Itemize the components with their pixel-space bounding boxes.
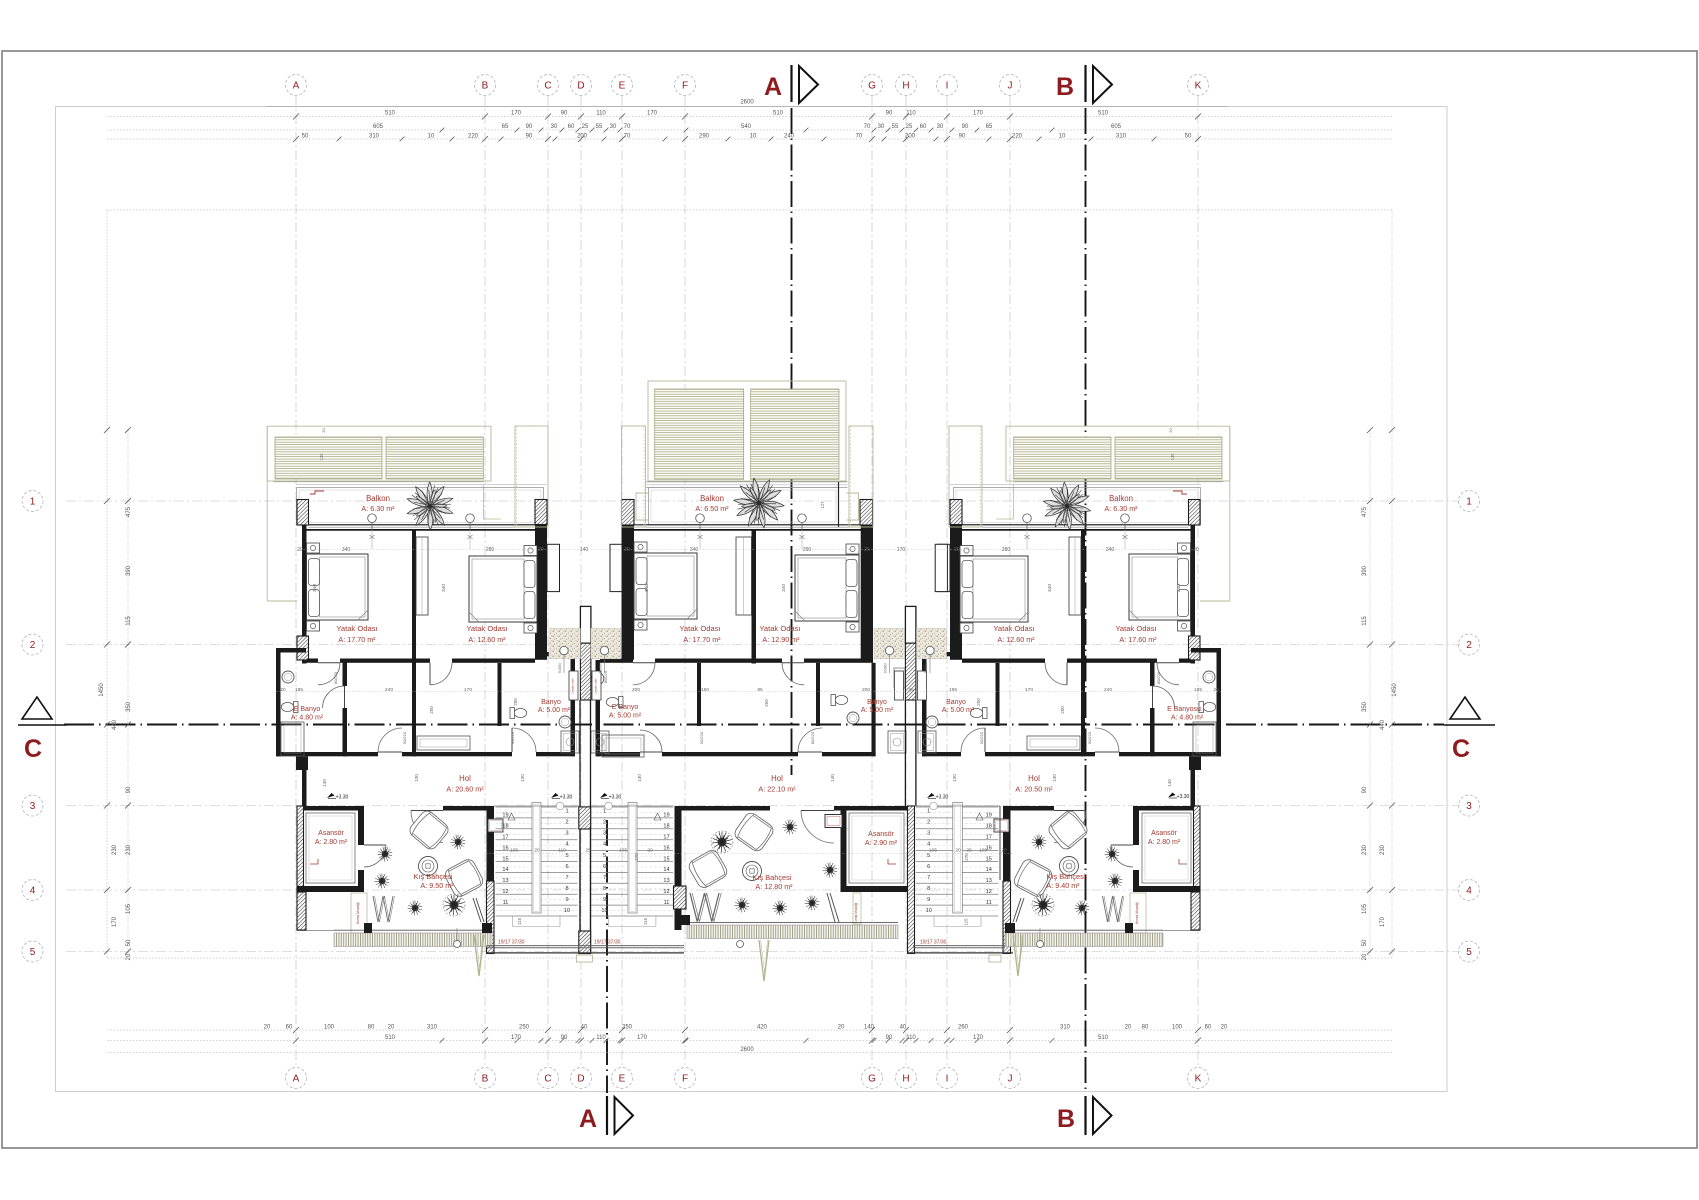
svg-text:170: 170 — [112, 916, 118, 927]
svg-text:6: 6 — [565, 864, 568, 870]
svg-text:60: 60 — [568, 124, 575, 130]
svg-text:+3.30: +3.30 — [936, 795, 949, 801]
svg-text:Yatak Odası: Yatak Odası — [679, 624, 720, 633]
svg-text:19: 19 — [502, 813, 508, 819]
svg-text:20: 20 — [955, 848, 961, 854]
svg-text:Banyo: Banyo — [867, 699, 887, 706]
svg-text:19: 19 — [663, 813, 669, 819]
svg-text:A: 5.00 m²: A: 5.00 m² — [538, 707, 571, 714]
svg-text:250: 250 — [429, 706, 434, 714]
svg-text:110: 110 — [596, 1035, 606, 1041]
svg-text:B: B — [482, 1074, 489, 1085]
svg-text:2: 2 — [603, 820, 606, 826]
svg-text:605: 605 — [1111, 124, 1122, 130]
svg-text:310: 310 — [369, 134, 380, 140]
svg-text:E: E — [619, 1074, 626, 1085]
svg-text:340: 340 — [690, 547, 699, 553]
svg-text:J: J — [1008, 81, 1013, 92]
svg-text:Balkon: Balkon — [366, 494, 390, 503]
svg-text:A: 5.00 m²: A: 5.00 m² — [609, 713, 642, 720]
svg-text:1: 1 — [565, 809, 568, 815]
svg-text:250: 250 — [519, 1025, 530, 1031]
svg-text:440: 440 — [112, 719, 118, 730]
svg-text:140: 140 — [580, 547, 589, 553]
svg-text:230: 230 — [1380, 844, 1386, 855]
svg-text:540: 540 — [741, 124, 752, 130]
svg-text:605: 605 — [373, 124, 384, 130]
svg-text:130: 130 — [1052, 774, 1057, 782]
svg-text:25: 25 — [966, 848, 972, 854]
svg-text:200: 200 — [577, 134, 588, 140]
svg-text:A: 6.50 m²: A: 6.50 m² — [695, 504, 729, 513]
svg-text:2: 2 — [565, 820, 568, 826]
svg-text:310: 310 — [1116, 134, 1127, 140]
svg-text:440: 440 — [1380, 719, 1386, 730]
svg-text:140: 140 — [864, 1025, 875, 1031]
svg-text:2600: 2600 — [740, 1047, 754, 1053]
svg-text:Hol: Hol — [771, 774, 783, 783]
svg-text:80: 80 — [1142, 1025, 1149, 1031]
svg-text:230: 230 — [112, 844, 118, 855]
svg-text:20: 20 — [1168, 428, 1173, 433]
svg-text:A: 4.80 m²: A: 4.80 m² — [1171, 715, 1204, 722]
svg-text:I: I — [946, 1074, 949, 1085]
svg-text:A: 5.00 m²: A: 5.00 m² — [942, 707, 975, 714]
svg-text:10: 10 — [564, 908, 570, 914]
svg-text:20: 20 — [838, 1025, 845, 1031]
svg-text:510: 510 — [385, 1035, 396, 1041]
svg-text:90/220: 90/220 — [699, 731, 704, 744]
svg-text:150: 150 — [701, 687, 709, 693]
svg-text:310: 310 — [427, 1025, 438, 1031]
svg-text:11: 11 — [986, 900, 992, 906]
svg-text:170: 170 — [511, 1035, 522, 1041]
svg-text:30: 30 — [610, 124, 617, 130]
svg-text:9: 9 — [603, 897, 606, 903]
svg-text:290: 290 — [803, 547, 812, 553]
svg-text:170: 170 — [647, 111, 658, 117]
svg-text:105: 105 — [619, 848, 627, 854]
svg-text:A: 17.70 m²: A: 17.70 m² — [338, 635, 376, 644]
svg-text:H: H — [902, 81, 909, 92]
svg-text:170: 170 — [637, 1035, 648, 1041]
svg-text:510: 510 — [385, 111, 396, 117]
svg-text:12: 12 — [502, 889, 508, 895]
svg-text:9: 9 — [565, 897, 568, 903]
svg-text:13: 13 — [502, 878, 508, 884]
svg-text:230: 230 — [126, 844, 132, 855]
svg-text:4: 4 — [927, 842, 930, 848]
svg-text:6: 6 — [927, 864, 930, 870]
svg-text:1450: 1450 — [1392, 683, 1398, 697]
svg-text:90: 90 — [561, 1035, 568, 1041]
svg-text:90: 90 — [561, 111, 568, 117]
svg-text:8: 8 — [927, 886, 930, 892]
svg-text:105: 105 — [1362, 903, 1368, 914]
svg-text:4: 4 — [565, 842, 568, 848]
svg-text:340: 340 — [1176, 584, 1182, 592]
svg-text:D: D — [577, 81, 584, 92]
svg-text:130: 130 — [520, 774, 525, 782]
svg-text:10: 10 — [1059, 134, 1066, 140]
svg-text:130: 130 — [1170, 453, 1175, 461]
svg-text:14: 14 — [502, 867, 508, 873]
svg-text:50: 50 — [302, 134, 309, 140]
svg-text:15: 15 — [663, 856, 669, 862]
svg-text:240: 240 — [784, 134, 795, 140]
svg-text:8: 8 — [565, 886, 568, 892]
svg-text:250: 250 — [622, 1025, 633, 1031]
svg-text:H: H — [902, 1074, 909, 1085]
svg-text:90/220: 90/220 — [402, 731, 407, 744]
svg-text:A: 17.60 m²: A: 17.60 m² — [1119, 635, 1157, 644]
svg-text:20: 20 — [534, 848, 540, 854]
svg-text:105: 105 — [126, 903, 132, 914]
svg-text:B: B — [1056, 73, 1074, 101]
svg-text:115: 115 — [126, 616, 132, 626]
svg-text:Kırma Mozaiği: Kırma Mozaiği — [854, 903, 858, 924]
svg-text:A: 6.30 m²: A: 6.30 m² — [1104, 504, 1138, 513]
svg-text:Yatak Odası: Yatak Odası — [336, 624, 377, 633]
svg-text:Balkon: Balkon — [1109, 494, 1133, 503]
svg-text:280: 280 — [486, 547, 495, 553]
svg-text:A: 17.70 m²: A: 17.70 m² — [683, 635, 721, 644]
svg-text:E: E — [619, 81, 626, 92]
svg-text:90: 90 — [526, 134, 533, 140]
svg-text:8: 8 — [603, 886, 606, 892]
svg-text:A: 9.40 m²: A: 9.40 m² — [1046, 881, 1080, 890]
svg-text:1: 1 — [1466, 497, 1472, 508]
svg-text:420: 420 — [757, 1025, 768, 1031]
svg-text:A: 22.10 m²: A: 22.10 m² — [758, 785, 796, 794]
svg-text:185: 185 — [1194, 687, 1202, 693]
svg-text:105: 105 — [979, 848, 987, 854]
svg-text:17: 17 — [663, 834, 669, 840]
svg-text:80/220: 80/220 — [1156, 671, 1161, 684]
svg-text:50: 50 — [1185, 134, 1192, 140]
svg-text:E Banyo: E Banyo — [294, 706, 321, 713]
svg-text:25: 25 — [908, 687, 914, 693]
svg-text:25: 25 — [585, 848, 591, 854]
svg-text:70: 70 — [864, 124, 871, 130]
svg-text:90: 90 — [959, 134, 966, 140]
svg-text:30: 30 — [878, 124, 885, 130]
svg-text:130: 130 — [319, 453, 324, 461]
svg-text:18: 18 — [502, 824, 508, 830]
svg-text:80: 80 — [368, 1025, 375, 1031]
svg-text:250: 250 — [976, 698, 981, 706]
svg-text:475: 475 — [1362, 506, 1368, 517]
svg-text:90: 90 — [886, 1035, 893, 1041]
svg-text:1: 1 — [603, 809, 606, 815]
svg-text:Asansör: Asansör — [868, 831, 894, 838]
svg-text:350: 350 — [126, 701, 132, 712]
svg-text:B: B — [1057, 1105, 1075, 1133]
svg-text:290: 290 — [699, 134, 710, 140]
svg-text:80/220: 80/220 — [603, 670, 608, 683]
svg-text:Kış Bahçesi: Kış Bahçesi — [752, 873, 791, 882]
svg-text:+3.30: +3.30 — [609, 795, 622, 801]
svg-text:20: 20 — [647, 848, 653, 854]
svg-text:C: C — [544, 81, 551, 92]
svg-text:55: 55 — [596, 124, 603, 130]
svg-text:80/220: 80/220 — [810, 731, 815, 744]
svg-text:115: 115 — [1362, 616, 1368, 626]
svg-text:14: 14 — [663, 867, 669, 873]
svg-text:90: 90 — [886, 111, 893, 117]
svg-text:A: 12.90 m²: A: 12.90 m² — [762, 635, 800, 644]
svg-text:C: C — [24, 735, 42, 763]
svg-text:260: 260 — [958, 1025, 969, 1031]
svg-text:19/17 37/30: 19/17 37/30 — [594, 940, 621, 946]
svg-text:140: 140 — [322, 779, 327, 787]
svg-text:3: 3 — [30, 801, 36, 812]
svg-text:15: 15 — [986, 856, 992, 862]
svg-text:110: 110 — [906, 111, 916, 117]
svg-text:270: 270 — [964, 853, 969, 861]
svg-text:Kırma Mozaiği: Kırma Mozaiği — [1135, 902, 1139, 924]
svg-text:475: 475 — [126, 506, 132, 517]
svg-text:16: 16 — [663, 845, 669, 851]
svg-text:510: 510 — [1098, 1035, 1109, 1041]
svg-text:A: 20.50 m²: A: 20.50 m² — [1015, 785, 1053, 794]
svg-text:105: 105 — [510, 848, 518, 854]
svg-text:340: 340 — [1106, 547, 1115, 553]
svg-text:90/260: 90/260 — [599, 663, 603, 673]
svg-text:20: 20 — [388, 1025, 395, 1031]
svg-text:90/220: 90/220 — [510, 731, 515, 744]
svg-text:Asansör: Asansör — [318, 830, 344, 837]
svg-text:5: 5 — [1466, 947, 1472, 958]
svg-text:Kış Bahçesi: Kış Bahçesi — [1046, 872, 1085, 881]
svg-text:11: 11 — [664, 900, 670, 906]
svg-text:A: 9.50 m²: A: 9.50 m² — [420, 881, 454, 890]
svg-text:18: 18 — [986, 824, 992, 830]
svg-text:30: 30 — [937, 124, 944, 130]
svg-text:185: 185 — [295, 687, 303, 693]
svg-text:110: 110 — [558, 848, 566, 854]
svg-text:130: 130 — [952, 774, 957, 782]
svg-text:30: 30 — [551, 124, 558, 130]
svg-text:390: 390 — [1362, 565, 1368, 576]
svg-text:25: 25 — [582, 124, 589, 130]
svg-text:5: 5 — [30, 947, 36, 958]
svg-text:A: A — [293, 1074, 300, 1085]
svg-text:20: 20 — [126, 953, 132, 960]
svg-text:20: 20 — [264, 1025, 271, 1031]
svg-text:16: 16 — [502, 845, 508, 851]
svg-text:340: 340 — [312, 584, 318, 592]
svg-text:F: F — [682, 1074, 688, 1085]
svg-text:170: 170 — [973, 111, 984, 117]
svg-text:340: 340 — [781, 584, 787, 592]
svg-text:250: 250 — [513, 698, 518, 706]
svg-text:A: 12.60 m²: A: 12.60 m² — [468, 635, 506, 644]
svg-text:50: 50 — [1362, 939, 1368, 946]
svg-text:2600: 2600 — [740, 100, 754, 106]
svg-text:115: 115 — [964, 918, 969, 926]
svg-text:A: 12.80 m²: A: 12.80 m² — [755, 882, 793, 891]
svg-text:9: 9 — [927, 897, 930, 903]
svg-text:1: 1 — [30, 497, 36, 508]
svg-text:6: 6 — [603, 864, 606, 870]
svg-text:390: 390 — [126, 565, 132, 576]
svg-text:1: 1 — [927, 809, 930, 815]
svg-text:250: 250 — [764, 699, 769, 707]
svg-text:F: F — [682, 81, 688, 92]
svg-text:20: 20 — [1193, 547, 1199, 553]
svg-text:20: 20 — [321, 428, 326, 433]
svg-text:D: D — [577, 1074, 584, 1085]
svg-text:3: 3 — [927, 831, 930, 837]
svg-text:90: 90 — [962, 124, 969, 130]
svg-text:G: G — [868, 1074, 876, 1085]
svg-text:240: 240 — [385, 687, 393, 693]
svg-text:170: 170 — [897, 547, 906, 553]
svg-text:A: 2.80 m²: A: 2.80 m² — [315, 839, 348, 846]
svg-text:240: 240 — [1104, 687, 1112, 693]
svg-text:90: 90 — [1362, 786, 1368, 793]
svg-text:90: 90 — [526, 124, 533, 130]
svg-text:340: 340 — [644, 584, 650, 592]
svg-text:17: 17 — [502, 834, 508, 840]
svg-text:2: 2 — [927, 820, 930, 826]
svg-text:65: 65 — [502, 124, 509, 130]
svg-text:50: 50 — [126, 939, 132, 946]
svg-text:200: 200 — [862, 687, 870, 693]
svg-text:130: 130 — [637, 774, 642, 782]
svg-text:105: 105 — [929, 848, 937, 854]
svg-text:510: 510 — [1098, 111, 1109, 117]
svg-text:60: 60 — [1205, 1025, 1212, 1031]
svg-text:15: 15 — [502, 856, 508, 862]
svg-text:20: 20 — [864, 547, 870, 553]
svg-text:A: A — [579, 1105, 597, 1133]
svg-text:280: 280 — [1002, 547, 1011, 553]
svg-text:25: 25 — [906, 124, 913, 130]
svg-text:Banyo: Banyo — [541, 699, 561, 706]
svg-text:65: 65 — [986, 124, 993, 130]
svg-text:+3.30: +3.30 — [560, 795, 573, 801]
svg-text:Yatak Odası: Yatak Odası — [759, 624, 800, 633]
svg-text:195: 195 — [949, 687, 957, 693]
svg-text:10: 10 — [428, 134, 435, 140]
svg-text:230: 230 — [1362, 844, 1368, 855]
svg-text:Banyo: Banyo — [946, 699, 966, 706]
svg-text:Hol: Hol — [459, 774, 471, 783]
svg-text:17: 17 — [986, 834, 992, 840]
svg-text:85: 85 — [757, 687, 763, 693]
svg-text:140: 140 — [830, 774, 835, 782]
svg-text:90: 90 — [126, 786, 132, 793]
svg-text:A: 4.80 m²: A: 4.80 m² — [291, 715, 324, 722]
svg-text:13: 13 — [986, 878, 992, 884]
svg-text:170: 170 — [1380, 916, 1386, 927]
svg-text:60: 60 — [920, 124, 927, 130]
svg-text:20: 20 — [280, 687, 286, 693]
svg-text:2: 2 — [30, 640, 36, 651]
svg-text:G: G — [868, 81, 876, 92]
svg-text:340: 340 — [342, 547, 351, 553]
svg-text:60: 60 — [286, 1025, 293, 1031]
svg-text:70: 70 — [856, 134, 863, 140]
svg-text:7: 7 — [927, 875, 930, 881]
svg-text:19/17 37/30: 19/17 37/30 — [498, 940, 525, 946]
svg-text:Asansör: Asansör — [1151, 830, 1177, 837]
svg-text:4: 4 — [1466, 886, 1472, 897]
svg-text:3: 3 — [1466, 801, 1472, 812]
svg-text:130: 130 — [414, 774, 419, 782]
svg-text:3: 3 — [565, 831, 568, 837]
svg-text:I: I — [946, 81, 949, 92]
svg-text:20: 20 — [624, 547, 630, 553]
svg-text:115: 115 — [643, 917, 648, 925]
svg-text:220: 220 — [468, 134, 479, 140]
svg-text:170: 170 — [464, 687, 472, 693]
svg-text:14: 14 — [986, 867, 992, 873]
svg-text:Kırma Mozaiği: Kırma Mozaiği — [356, 902, 360, 924]
svg-text:127: 127 — [820, 501, 825, 509]
svg-text:90/220: 90/220 — [979, 731, 984, 744]
svg-text:J: J — [1008, 1074, 1013, 1085]
svg-text:80/220: 80/220 — [333, 671, 338, 684]
svg-text:70: 70 — [624, 124, 631, 130]
svg-text:140: 140 — [1167, 779, 1172, 787]
svg-text:20: 20 — [1125, 1025, 1132, 1031]
svg-text:Balkon: Balkon — [700, 494, 724, 503]
svg-text:10: 10 — [750, 134, 757, 140]
svg-text:E Banyosu: E Banyosu — [1167, 706, 1201, 713]
svg-text:A: 20.60 m²: A: 20.60 m² — [446, 785, 484, 794]
svg-text:B: B — [482, 81, 489, 92]
svg-text:A: A — [293, 81, 300, 92]
svg-text:270: 270 — [634, 853, 639, 861]
svg-text:20: 20 — [1001, 848, 1007, 854]
svg-text:A: 2.90 m²: A: 2.90 m² — [865, 840, 898, 847]
svg-text:18: 18 — [663, 824, 669, 830]
svg-text:100: 100 — [324, 1025, 335, 1031]
svg-text:Kış Bahçesi: Kış Bahçesi — [413, 872, 452, 881]
svg-text:1450: 1450 — [99, 683, 105, 697]
svg-text:20: 20 — [1221, 1025, 1228, 1031]
svg-text:Yatak Odası: Yatak Odası — [993, 624, 1034, 633]
svg-text:20: 20 — [1213, 687, 1219, 693]
svg-text:2: 2 — [1466, 640, 1472, 651]
svg-text:10: 10 — [926, 908, 932, 914]
svg-text:340: 340 — [441, 584, 447, 592]
svg-text:170: 170 — [973, 1035, 984, 1041]
svg-text:A: 12.60 m²: A: 12.60 m² — [997, 635, 1035, 644]
svg-text:7: 7 — [603, 875, 606, 881]
svg-text:19: 19 — [986, 813, 992, 819]
svg-text:E Banyo: E Banyo — [612, 704, 639, 711]
svg-text:+3.30: +3.30 — [1177, 794, 1190, 800]
svg-text:110: 110 — [906, 1035, 916, 1041]
svg-text:170: 170 — [511, 111, 522, 117]
svg-text:A: 5.00 m²: A: 5.00 m² — [861, 707, 894, 714]
svg-text:115: 115 — [517, 917, 522, 925]
svg-text:13: 13 — [663, 878, 669, 884]
svg-text:4: 4 — [603, 842, 606, 848]
svg-text:3: 3 — [603, 831, 606, 837]
svg-text:90/260: 90/260 — [884, 663, 888, 673]
svg-text:220: 220 — [1012, 134, 1023, 140]
svg-text:Hol: Hol — [1028, 774, 1040, 783]
svg-text:55: 55 — [892, 124, 899, 130]
svg-text:200: 200 — [632, 687, 640, 693]
svg-text:12: 12 — [986, 889, 992, 895]
svg-text:K: K — [1195, 81, 1202, 92]
